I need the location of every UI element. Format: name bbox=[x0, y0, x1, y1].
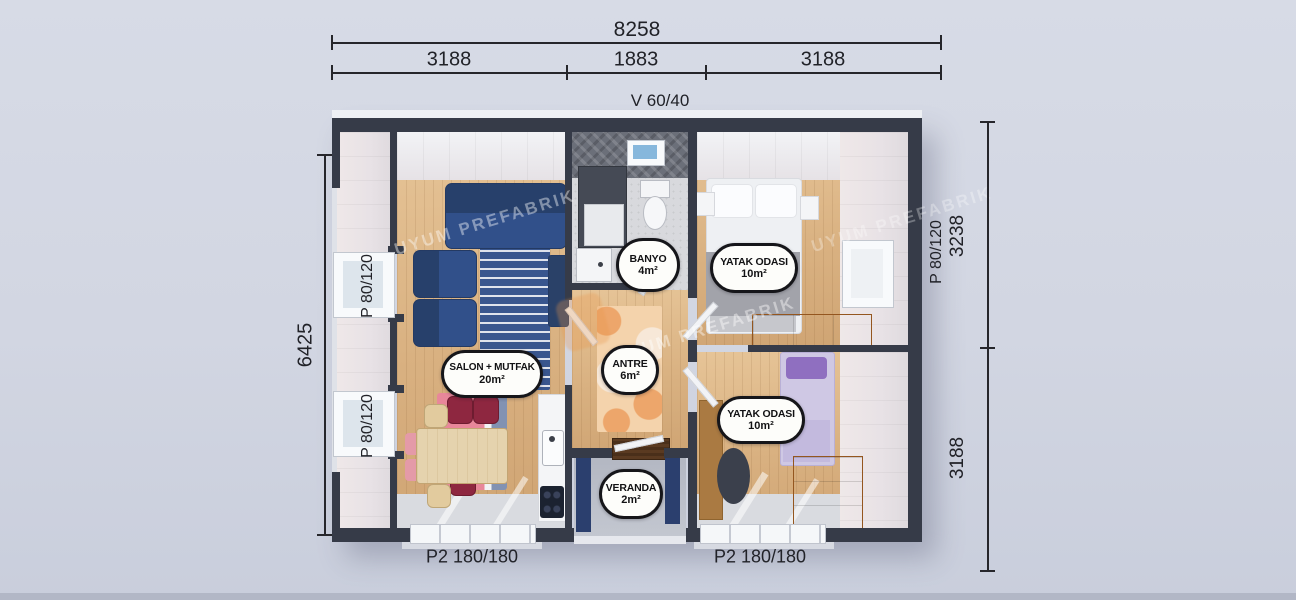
dim-left-total: 6425 bbox=[295, 323, 318, 368]
exterior-wall-band-left bbox=[336, 132, 392, 528]
dim-top-seg-3: 3188 bbox=[801, 49, 846, 72]
room-area: 4m² bbox=[638, 265, 658, 277]
pillow bbox=[755, 184, 797, 218]
wall-salon-antre-upper bbox=[565, 132, 572, 300]
dim-tick bbox=[566, 65, 568, 80]
dim-tick bbox=[705, 65, 707, 80]
armchair bbox=[413, 250, 477, 298]
wall-bottom-1 bbox=[332, 528, 412, 542]
dim-tick bbox=[980, 347, 995, 349]
dim-tick bbox=[940, 35, 942, 50]
dim-left-window-1: P 80/120 bbox=[359, 254, 377, 318]
sliding-door-right bbox=[700, 524, 826, 544]
room-area: 6m² bbox=[620, 370, 640, 382]
dim-bottom-door-1: P2 180/180 bbox=[426, 547, 518, 568]
dining-chair bbox=[473, 396, 499, 424]
dim-top-seg-2: 1883 bbox=[614, 49, 659, 72]
faucet bbox=[598, 262, 603, 267]
dim-line-top-segments bbox=[332, 72, 941, 74]
wall-entrance-right bbox=[664, 448, 688, 458]
dim-tick bbox=[317, 534, 332, 536]
armchair bbox=[413, 299, 477, 347]
shower-tray bbox=[584, 204, 624, 246]
wall-bottom-2 bbox=[534, 528, 574, 542]
wall-left-top bbox=[332, 118, 340, 188]
pillow bbox=[711, 184, 753, 218]
dining-chair bbox=[447, 396, 473, 424]
nightstand bbox=[800, 196, 819, 220]
dim-tick bbox=[940, 65, 942, 80]
toilet-bowl bbox=[643, 196, 667, 230]
washbasin bbox=[576, 248, 612, 282]
wall-salon-left-1 bbox=[390, 132, 397, 250]
wall-salon-left-2 bbox=[390, 318, 397, 389]
room-label-veranda: VERANDA 2m² bbox=[599, 469, 663, 519]
wall-salon-antre-lower bbox=[565, 385, 572, 528]
dim-top-seg-1: 3188 bbox=[427, 49, 472, 72]
desk-chair bbox=[717, 448, 750, 504]
dim-tick bbox=[331, 65, 333, 80]
room-name: ANTRE bbox=[612, 358, 647, 371]
wall-salon-left-3 bbox=[390, 457, 397, 528]
pillow bbox=[786, 357, 827, 379]
wicker-chair bbox=[424, 404, 448, 428]
dim-tick bbox=[317, 154, 332, 156]
dim-tick bbox=[331, 35, 333, 50]
dim-right-seg-1: 3238 bbox=[947, 215, 969, 257]
dim-left-window-2: P 80/120 bbox=[359, 394, 377, 458]
dim-right-seg-2: 3188 bbox=[947, 437, 969, 479]
faucet bbox=[549, 436, 555, 442]
veranda-step-edge bbox=[574, 536, 686, 544]
cooktop bbox=[540, 486, 564, 518]
room-area: 20m² bbox=[479, 374, 505, 386]
room-area: 10m² bbox=[748, 420, 774, 432]
wall-bathroom-right bbox=[688, 132, 697, 298]
wall-band-bedroom1-top bbox=[697, 132, 840, 180]
wall-top bbox=[332, 118, 922, 132]
dim-line-left bbox=[324, 155, 326, 536]
wall-right bbox=[908, 118, 922, 542]
dresser bbox=[793, 456, 863, 530]
room-area: 10m² bbox=[741, 268, 767, 280]
window-bedroom-1 bbox=[842, 240, 894, 308]
wall-entrance-left bbox=[572, 448, 612, 458]
dim-top-total: 8258 bbox=[614, 18, 661, 42]
room-label-banyo: BANYO 4m² bbox=[616, 238, 680, 292]
veranda-wall-right bbox=[665, 458, 680, 524]
room-label-antre: ANTRE 6m² bbox=[601, 345, 659, 395]
wall-band-salon-top bbox=[397, 132, 565, 180]
bathroom-vent-window bbox=[627, 140, 665, 166]
veranda-wall-left bbox=[576, 458, 591, 532]
wall-bedroom-divider bbox=[748, 345, 908, 352]
window-glass bbox=[633, 145, 657, 159]
room-label-yatak-odasi-2: YATAK ODASI 10m² bbox=[717, 396, 805, 444]
room-label-salon-mutfak: SALON + MUTFAK 20m² bbox=[441, 350, 543, 398]
room-name: SALON + MUTFAK bbox=[449, 362, 534, 374]
dining-table bbox=[416, 428, 508, 484]
room-label-yatak-odasi-1: YATAK ODASI 10m² bbox=[710, 243, 798, 293]
wall-bottom-4 bbox=[822, 528, 922, 542]
room-name: BANYO bbox=[630, 253, 667, 266]
room-name: YATAK ODASI bbox=[720, 256, 788, 269]
window-glass bbox=[851, 249, 883, 298]
floor-plan-scene: 8258 3188 1883 3188 V 60/40 6425 P 80/12… bbox=[0, 0, 1296, 600]
sliding-door-left bbox=[410, 524, 536, 544]
dim-right-window-label: P 80/120 bbox=[928, 220, 946, 284]
wicker-chair bbox=[427, 484, 451, 508]
dim-tick bbox=[980, 570, 995, 572]
room-area: 2m² bbox=[621, 494, 641, 506]
dim-bottom-door-2: P2 180/180 bbox=[714, 547, 806, 568]
dim-line-top-total bbox=[332, 42, 941, 44]
dim-top-window-label: V 60/40 bbox=[631, 91, 690, 111]
room-name: VERANDA bbox=[606, 482, 657, 495]
background-bottom-strip bbox=[0, 593, 1296, 600]
room-name: YATAK ODASI bbox=[727, 408, 795, 421]
nightstand bbox=[696, 192, 715, 216]
wall-bedroom2-left bbox=[688, 412, 697, 528]
dim-tick bbox=[980, 121, 995, 123]
